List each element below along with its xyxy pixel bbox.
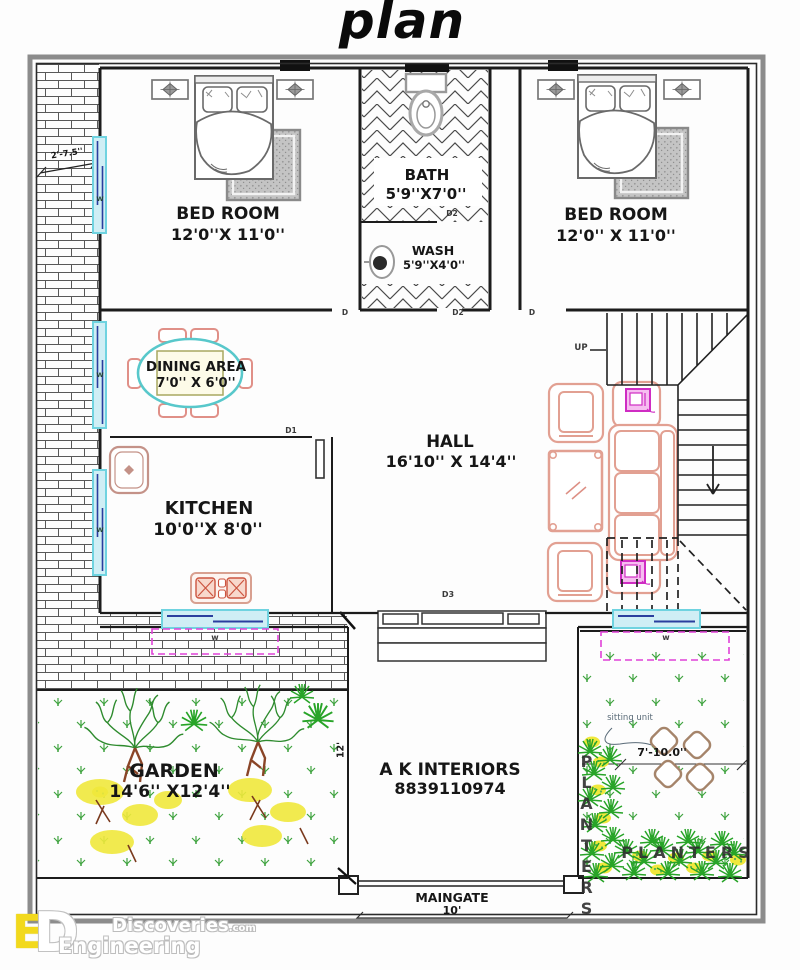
- kitchen-dims: 10'0''X 8'0'': [153, 522, 262, 539]
- kitchen-label: KITCHEN: [165, 500, 254, 518]
- appliance-bottom: [621, 561, 650, 584]
- door-tag-kitchen: D1: [285, 427, 296, 435]
- garden-label: GARDEN: [129, 762, 219, 781]
- garden-dims: 14'6'' X12'4'': [109, 784, 230, 801]
- entry-steps: [378, 611, 546, 661]
- sofa-set: [548, 382, 677, 601]
- maingate-label: MAINGATE: [415, 892, 488, 905]
- bedroom-left-dims: 12'0''X 11'0'': [171, 227, 285, 243]
- sitting-dimension-label: 7'-10.0'': [637, 747, 686, 758]
- kitchen-door-leaf: [316, 440, 324, 478]
- floor-plan-drawing: [0, 0, 800, 970]
- bedroom-left-label: BED ROOM: [176, 206, 280, 223]
- side-passage-pavers: [37, 63, 99, 613]
- maingate-dims: 10': [443, 905, 462, 916]
- hall-label: HALL: [426, 434, 474, 451]
- column: [548, 60, 578, 71]
- hall-dims: 16'10'' X 14'4'': [386, 454, 517, 470]
- window-tag-dining: W: [96, 372, 103, 379]
- toilet: [406, 74, 446, 135]
- planters-vertical-label: PLANTERS: [578, 752, 594, 894]
- bedroom-right-dims: 12'0'' X 11'0'': [556, 228, 676, 244]
- bath-dims: 5'9''X7'0'': [386, 187, 467, 202]
- window-tag-garden-left: w: [211, 634, 218, 642]
- window-tag-bedroom-left: W: [96, 196, 103, 203]
- dining-label: DINING AREA: [146, 361, 246, 375]
- stairs-up-label: UP: [574, 344, 587, 353]
- window-tag-garden-right: w: [662, 634, 669, 642]
- logo-brand-suffix: .com: [229, 923, 256, 934]
- stairs-down-arrow: [707, 446, 719, 494]
- page-title: plan: [339, 0, 465, 46]
- logo-brand-text: Discoveries.com: [112, 915, 256, 936]
- planters-horizontal-label: PLANTERS: [621, 845, 754, 861]
- porch-phone: 8839110974: [394, 781, 505, 797]
- logo-brand-word: Discoveries: [112, 915, 229, 936]
- window-tag-kitchen: W: [96, 527, 103, 534]
- dining-dims: 7'0'' X 6'0'': [156, 377, 235, 390]
- logo-line2-text: Engineering: [58, 934, 201, 958]
- wash-dims: 5'9''X4'0'': [403, 260, 465, 272]
- bedroom-right-furniture: [538, 75, 700, 198]
- bedroom-right-label: BED ROOM: [564, 207, 668, 224]
- bedroom-left-furniture: [152, 76, 313, 200]
- column: [405, 63, 449, 72]
- bath-label: BATH: [405, 168, 450, 183]
- door-tag-bedroom-right: D: [529, 309, 535, 317]
- door-tag-bath: D2: [452, 309, 463, 317]
- sitting-unit-label: sitting unit: [607, 714, 653, 723]
- column: [280, 60, 310, 71]
- stove: [191, 573, 251, 603]
- door-tag-main: D3: [442, 591, 454, 599]
- watermark-logo: E D Discoveries.com Engineering: [8, 903, 268, 967]
- wash-basin: [364, 246, 394, 278]
- door-tag-bedroom-left: D: [342, 309, 348, 317]
- door-tag-wash: D2: [446, 210, 457, 218]
- porch-brand: A K INTERIORS: [379, 762, 520, 779]
- porch-depth-dimension-label: 12': [336, 742, 346, 758]
- kitchen-sink: [110, 447, 148, 493]
- appliance-top: [626, 389, 655, 412]
- wash-label: WASH: [412, 245, 454, 258]
